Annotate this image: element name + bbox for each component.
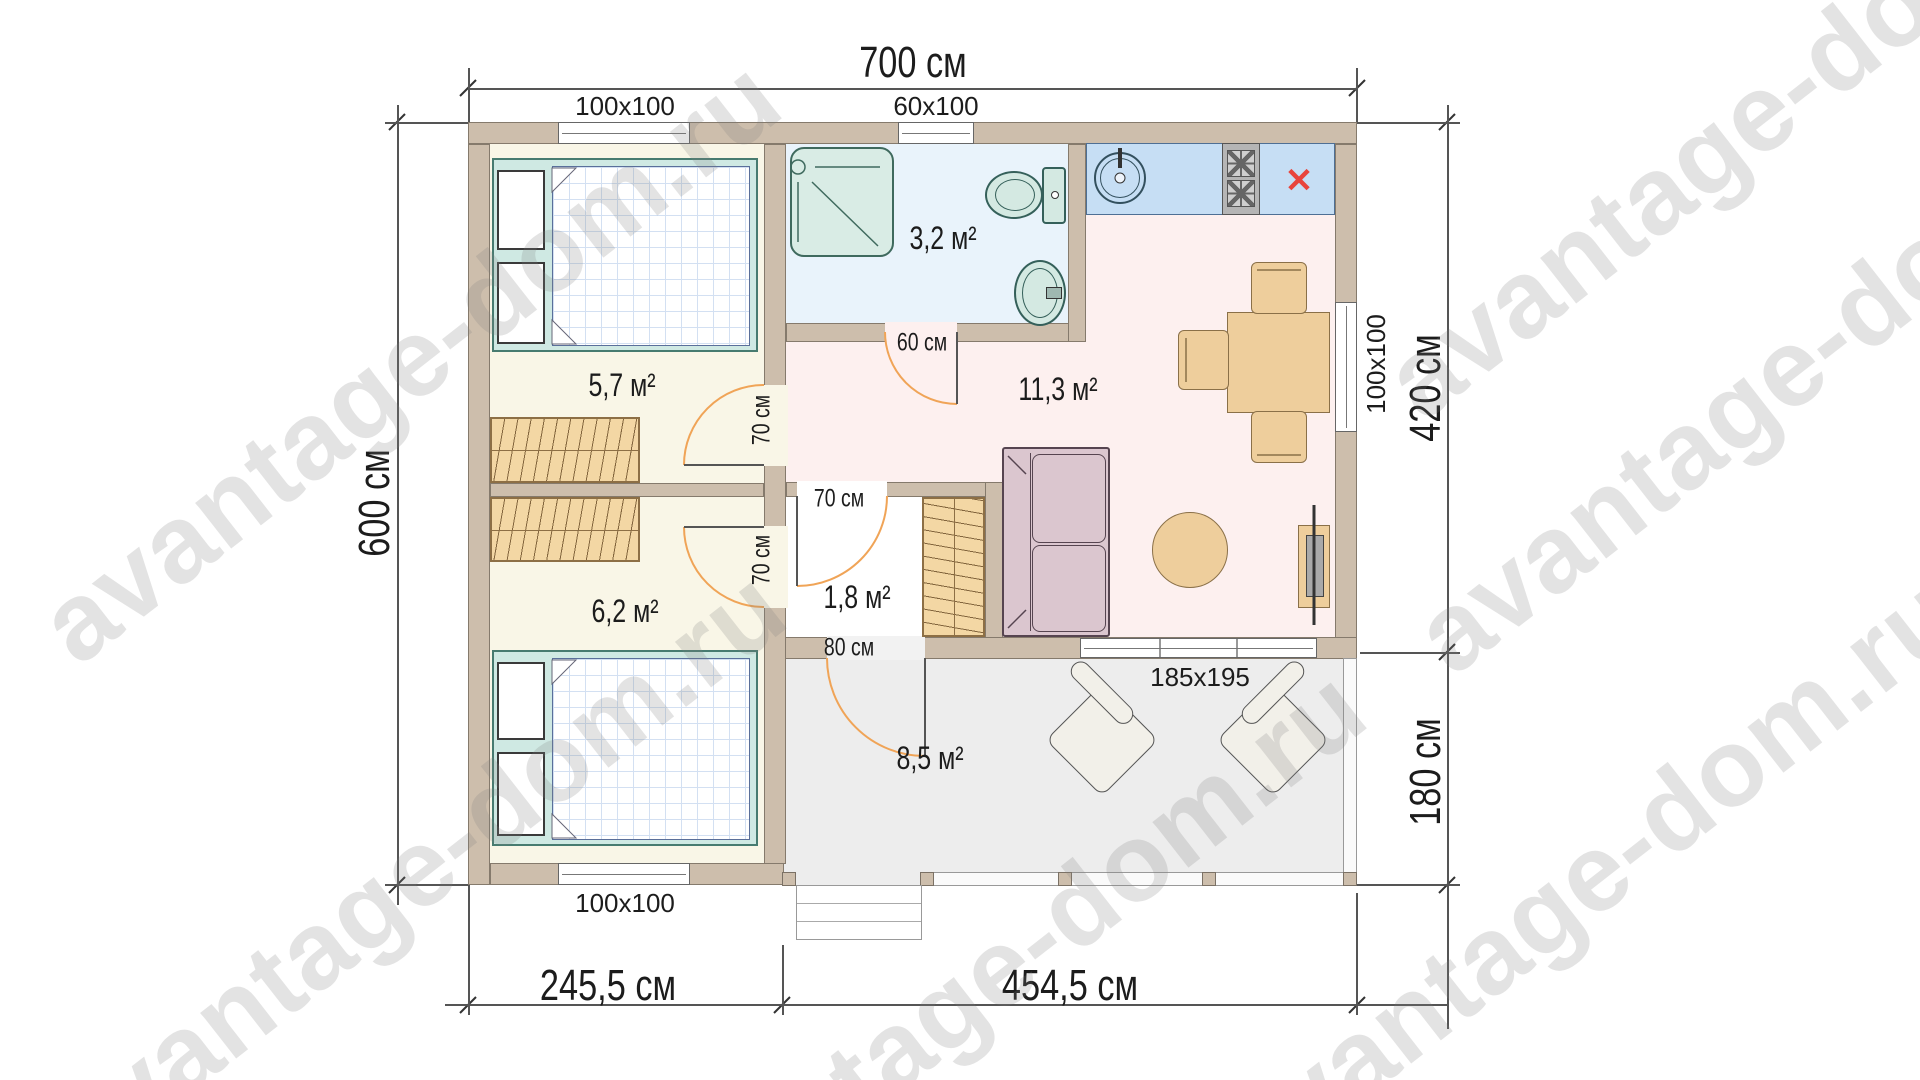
room-label-bathroom: 3,2 м² [909,222,976,254]
dim-label-width-right: 454,5 см [1002,964,1138,1008]
sofa-back-line [1030,453,1031,631]
window-sash-line [902,133,970,134]
window-sash-line [1084,648,1313,649]
stove-burner-icon [1227,150,1255,177]
terrace-post [920,872,934,886]
window-sash-line [562,133,686,134]
terrace-post [1202,872,1216,886]
window-sash-line [1346,306,1347,428]
dim-label-height-total: 600 см [353,449,397,557]
window-label-right-living: 100x100 [1363,314,1389,414]
wall-interior-vertical [764,144,786,864]
toilet-button [1051,191,1059,199]
toilet-bowl-inner [995,179,1035,211]
sofa-cushion [1032,454,1106,543]
watermark-text: avantage-dom.ru [1391,44,1920,699]
terrace-post [1343,872,1357,886]
door-label-entrance: 80 см [824,636,874,661]
dining-table [1227,312,1330,413]
room-label-bedroom-bottom: 6,2 м² [591,595,658,627]
dim-line-right [1447,105,1449,1029]
shower-tray-icon [790,147,894,257]
dim-label-width-total: 700 см [859,41,967,85]
dim-ext [782,945,784,1015]
wall-bathroom-right [1068,144,1086,342]
dim-label-height-main: 420 см [1404,334,1448,442]
wardrobe-hall [922,497,985,637]
kitchen-sink-inner [1100,158,1140,198]
room-label-hall: 1,8 м² [823,581,890,613]
dim-ext [468,885,470,1015]
window-label-top-bedroom: 100x100 [575,93,675,119]
round-rug [1152,512,1228,588]
dim-ext [468,68,470,122]
window-top-bedroom [558,122,690,144]
dim-ext [1356,68,1358,122]
bed-top-mattress [552,166,750,346]
wardrobe-divider [492,450,638,451]
wardrobe-divider [954,499,955,635]
nightstand [497,170,545,250]
window-right-living [1335,302,1357,432]
dim-ext [1360,652,1460,654]
floor-plan-canvas: ✕ [0,0,1920,1080]
door-label-bathroom: 60 см [897,331,947,356]
nightstand [497,752,545,836]
bath-sink-faucet-icon [1046,287,1062,299]
window-label-top-bathroom: 60x100 [893,93,978,119]
door-label-bedroom-top: 70 см [750,395,775,445]
dim-label-width-left: 245,5 см [540,964,676,1008]
wall-bedrooms-divider [490,483,764,497]
dim-line-top [468,88,1357,90]
terrace-post [782,872,796,886]
chair [1178,330,1229,390]
dim-ext [385,884,468,886]
door-label-bedroom-bottom: 70 см [750,535,775,585]
terrace-rail-right [1343,658,1357,886]
dim-label-height-terrace: 180 см [1404,718,1448,826]
nightstand [497,662,545,740]
tv-icon [1306,535,1324,597]
wall-exterior-left [468,144,490,885]
wall-hall-right [985,482,1003,638]
room-label-bedroom-top: 5,7 м² [588,369,655,401]
dim-ext [1356,893,1358,1015]
window-label-bottom-bedroom: 100x100 [575,890,675,916]
window-bottom-bedroom [558,863,690,885]
door-label-hall: 70 см [814,487,864,512]
bed-bottom-mattress [552,658,750,840]
window-terrace-living [1080,638,1317,658]
chair [1251,262,1307,314]
wardrobe-bedroom-top [490,417,640,483]
room-label-living-kitchen: 11,3 м² [1018,373,1097,405]
window-top-bathroom [898,122,974,144]
wardrobe-divider [492,530,638,531]
dim-ext [385,122,468,124]
wardrobe-bedroom-bottom [490,497,640,562]
nightstand [497,262,545,344]
dim-ext [1357,884,1460,886]
sofa-cushion [1032,545,1106,632]
terrace-post [1058,872,1072,886]
window-sash-line [562,874,686,875]
terrace-rail-bottom [922,872,1357,886]
room-label-terrace: 8,5 м² [896,742,963,774]
chair [1251,411,1307,463]
dim-ext [1357,122,1460,124]
window-label-terrace: 185x195 [1150,664,1250,690]
step-line [797,921,921,922]
stove-burner-icon [1227,180,1255,207]
entrance-steps [796,885,922,940]
step-line [797,903,921,904]
kitchen-x-mark: ✕ [1285,164,1314,198]
